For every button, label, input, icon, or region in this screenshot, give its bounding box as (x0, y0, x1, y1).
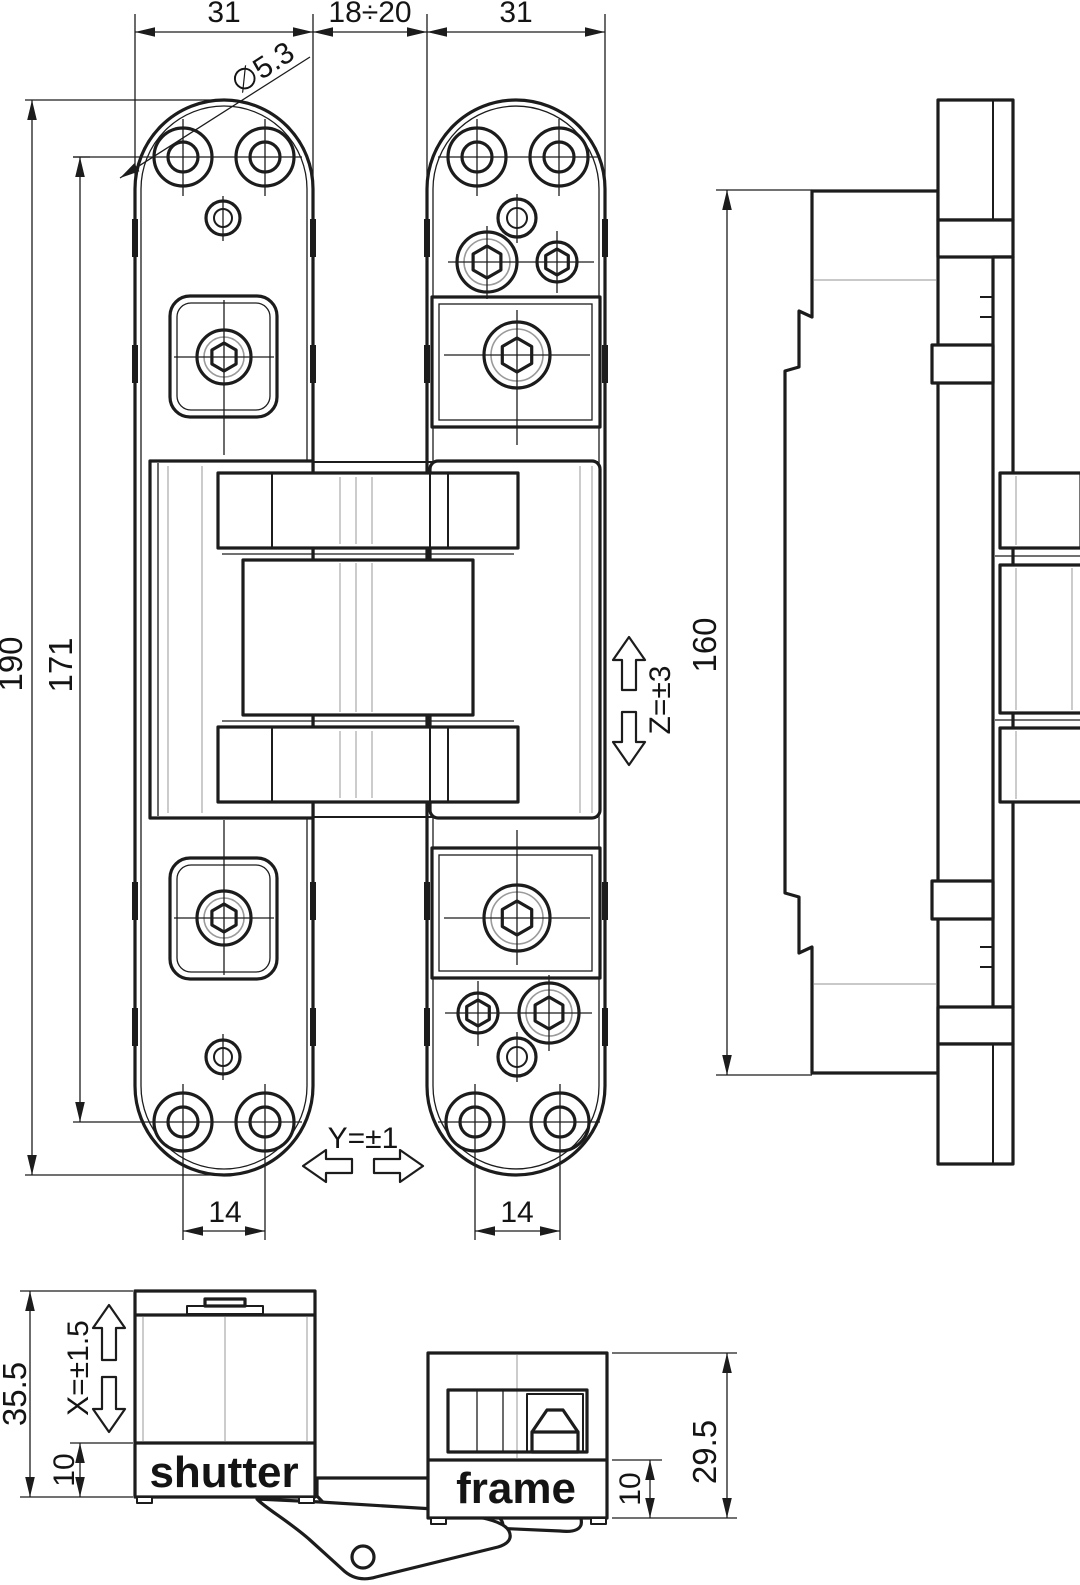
dim-screw-span-right: 14 (500, 1196, 533, 1229)
dim-screw-hole-dia: ∅5.3 (225, 36, 300, 101)
hinge-link-mechanism (150, 461, 600, 818)
frame-part: frame (428, 1353, 607, 1524)
dim-gap: 18÷20 (328, 0, 411, 29)
dim-shutter-depth: 35.5 (0, 1362, 33, 1426)
dim-screw-span-left: 14 (208, 1196, 241, 1229)
shutter-label: shutter (149, 1448, 298, 1497)
hinge-technical-drawing: shutter frame (0, 0, 1080, 1585)
hinge-technical-drawing-page: shutter frame (0, 0, 1080, 1585)
dim-frame-depth: 29.5 (686, 1420, 723, 1484)
side-view (785, 100, 1080, 1164)
adjust-z-arrows (613, 637, 645, 765)
bottom-section-view: shutter frame (135, 1291, 607, 1579)
dim-side-height: 160 (686, 617, 723, 672)
side-profile-body (785, 191, 938, 1073)
shutter-part: shutter (135, 1291, 315, 1503)
dim-total-height: 190 (0, 636, 29, 691)
adjust-x-label: X=±1.5 (62, 1320, 95, 1416)
dim-frame-plate-height: 10 (614, 1472, 647, 1505)
adjust-z-label: Z=±3 (644, 666, 677, 735)
front-view (73, 100, 608, 1175)
dim-plate-width-right: 31 (499, 0, 532, 29)
frame-label: frame (456, 1464, 576, 1513)
adjust-x-arrows (93, 1305, 125, 1432)
dim-hole-span: 171 (42, 637, 79, 692)
adjust-y-label: Y=±1 (328, 1122, 399, 1155)
dim-plate-width-left: 31 (207, 0, 240, 29)
dim-shutter-plate-height: 10 (48, 1453, 81, 1486)
